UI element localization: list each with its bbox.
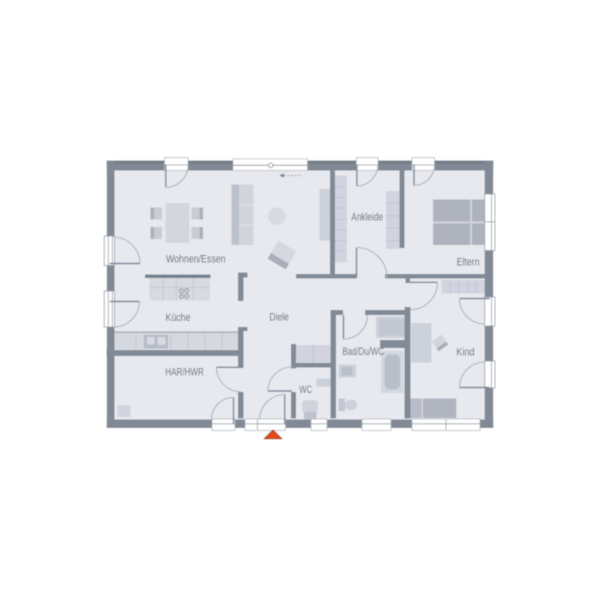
svg-text:Bad/Du/WC: Bad/Du/WC [343,346,385,358]
svg-text:HAR/HWR: HAR/HWR [165,366,204,378]
svg-text:Küche: Küche [166,312,191,324]
svg-text:WC: WC [299,384,312,396]
svg-text:Eltern: Eltern [457,256,480,268]
svg-text:Ankleide: Ankleide [351,211,383,223]
svg-text:Kind: Kind [456,347,474,359]
svg-text:Diele: Diele [269,311,289,323]
svg-text:Wohnen/Essen: Wohnen/Essen [166,254,226,266]
